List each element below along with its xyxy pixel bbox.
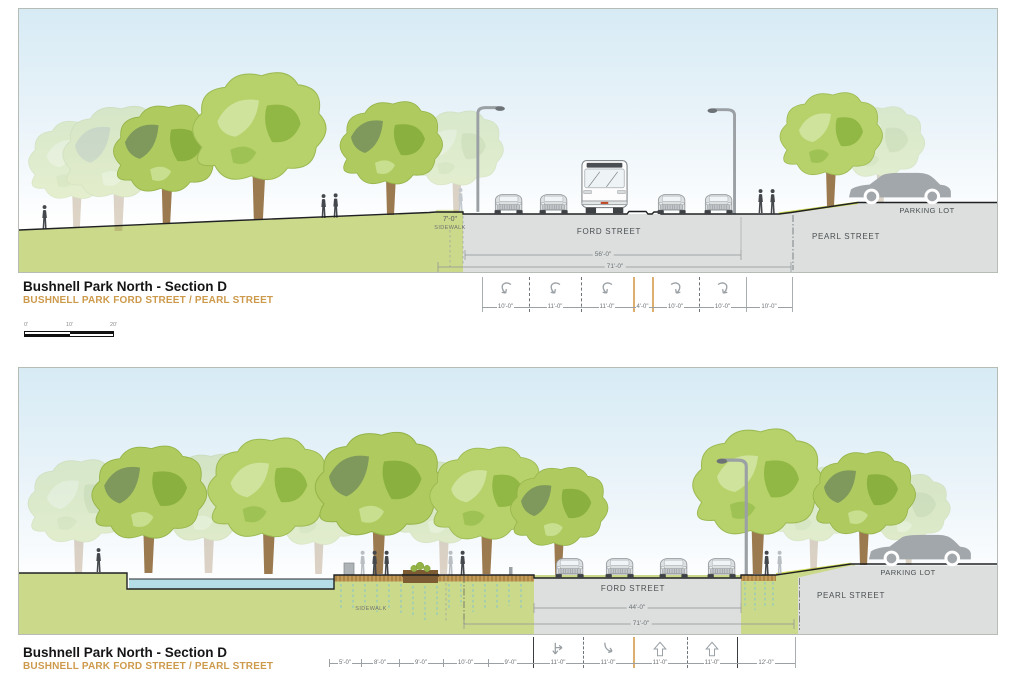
bottom-lane-dimension-row: 5'-0"8'-0"9'-0"10'-0"9'-0"11'-0"11'-0"11… (329, 637, 797, 672)
tree-icon (340, 102, 443, 215)
lane-arrow-up-icon (703, 640, 721, 658)
lane-width-label: 10'-0" (667, 304, 684, 310)
lane-cell: 11'-0" (687, 637, 737, 671)
car-icon (495, 195, 523, 215)
person-icon (758, 189, 763, 213)
lane-boundary (795, 637, 796, 668)
section-drawing-sheet: 7'-0" SIDEWALK FORD STREET PEARL STREET … (0, 0, 1024, 683)
lane-width-label: 4'-0" (636, 304, 650, 310)
parking-lot-label: PARKING LOT (880, 568, 935, 577)
ford-street-label: FORD STREET (577, 227, 641, 236)
parked-car-icon (849, 173, 951, 203)
pearl-street-label: PEARL STREET (817, 591, 885, 600)
bottom-section-panel: SIDEWALK FORD STREET PEARL STREET PARKIN… (18, 367, 998, 635)
soil-band (741, 575, 776, 581)
top-lane-dimension-row: 10'-0"11'-0"11'-0"4'-0"10'-0"10'-0"10'-0… (482, 277, 794, 316)
page-subtitle: BUSHNELL PARK FORD STREET / PEARL STREET (23, 661, 273, 672)
lane-arrow-up-icon (651, 640, 669, 658)
scale-tick-label: 0' (24, 322, 28, 328)
page-title: Bushnell Park North - Section D (23, 645, 273, 660)
lane-arrow-curve-right-icon (599, 640, 617, 658)
person-icon (764, 551, 769, 575)
lane-cell: 10'-0" (746, 277, 792, 315)
lane-cell: 10'-0" (482, 277, 529, 315)
car-icon (658, 195, 686, 215)
ford-street-label: FORD STREET (601, 584, 665, 593)
person-icon (770, 189, 775, 213)
lane-arrow-curl-right-icon (667, 280, 685, 298)
lane-width-label: 11'-0" (600, 660, 617, 666)
lane-cell: 11'-0" (529, 277, 581, 315)
tree-icon (511, 467, 608, 575)
tree-icon (693, 429, 824, 574)
water-channel (129, 579, 334, 589)
lane-width-label: 11'-0" (704, 660, 721, 666)
lane-width-label: 9'-0" (414, 660, 428, 666)
person-icon (96, 548, 101, 572)
car-icon (705, 195, 733, 215)
person-icon (448, 551, 453, 575)
car-icon (540, 195, 568, 215)
lane-arrow-curl-left-icon (497, 280, 515, 298)
lane-width-label: 11'-0" (599, 304, 616, 310)
lane-width-label: 12'-0" (757, 660, 774, 666)
lane-cell: 5'-0" (329, 637, 361, 671)
top-section-panel: 7'-0" SIDEWALK FORD STREET PEARL STREET … (18, 8, 998, 273)
scale-bar: 0' 10' 20' (24, 322, 144, 340)
top-title-block: Bushnell Park North - Section D BUSHNELL… (23, 279, 273, 306)
planter (402, 570, 439, 583)
lane-width-label: 10'-0" (714, 304, 731, 310)
lane-width-label: 11'-0" (652, 660, 669, 666)
lane-cell: 10'-0" (699, 277, 746, 315)
tree-icon (92, 446, 207, 573)
bollard-icon (509, 567, 513, 575)
lane-width-label: 9'-0" (504, 660, 518, 666)
bus-icon (582, 161, 627, 214)
lane-width-label: 5'-0" (338, 660, 352, 666)
tree-icon (315, 432, 443, 574)
bottom-title-block: Bushnell Park North - Section D BUSHNELL… (23, 645, 273, 672)
lane-cell: 9'-0" (488, 637, 533, 671)
lane-cell: 12'-0" (737, 637, 795, 671)
scale-tick-label: 10' (66, 322, 73, 328)
pearl-street-label: PEARL STREET (812, 232, 880, 241)
lane-cell: 8'-0" (361, 637, 399, 671)
lane-width-label: 11'-0" (550, 660, 567, 666)
lane-width-label: 11'-0" (547, 304, 564, 310)
lane-width-label: 10'-0" (497, 304, 514, 310)
lane-cell: 10'-0" (443, 637, 488, 671)
lane-cell: 10'-0" (652, 277, 699, 315)
tree-icon (193, 73, 326, 220)
trash-bin-icon (344, 563, 354, 575)
person-icon (321, 194, 326, 218)
parking-lot-label: PARKING LOT (899, 206, 954, 215)
lane-cell: 4'-0" (633, 277, 652, 315)
roadway-width-dim: 44'-0" (627, 604, 648, 611)
park-ground (19, 210, 463, 272)
trees (92, 429, 916, 575)
overall-width-dim: 71'-0" (605, 263, 626, 270)
lane-cell: 9'-0" (399, 637, 443, 671)
roadway-width-dim: 56'-0" (593, 251, 614, 258)
lane-boundary (792, 277, 793, 312)
overall-width-dim: 71'-0" (631, 620, 652, 627)
lane-width-label: 10'-0" (760, 304, 777, 310)
person-icon (384, 551, 389, 575)
sidewalk-width-label: 7'-0" (443, 216, 457, 223)
lane-cell: 11'-0" (581, 277, 633, 315)
lane-arrow-curl-left-icon (598, 280, 616, 298)
lane-cell: 11'-0" (533, 637, 583, 671)
lane-arrow-curl-right-icon (714, 280, 732, 298)
sidewalk-label: SIDEWALK (434, 225, 465, 231)
lane-arrow-branch-right-icon (549, 640, 567, 658)
person-icon (42, 205, 47, 229)
person-icon (333, 193, 338, 217)
scale-bar-graphic (24, 331, 114, 337)
lane-width-label: 10'-0" (457, 660, 474, 666)
person-icon (460, 551, 465, 575)
person-icon (777, 551, 782, 575)
lane-cell: 11'-0" (633, 637, 687, 671)
lane-cell: 11'-0" (583, 637, 633, 671)
person-icon (360, 551, 365, 575)
lane-arrow-curl-left-icon (546, 280, 564, 298)
parked-car-icon (869, 535, 971, 565)
lane-width-label: 8'-0" (373, 660, 387, 666)
tree-icon (208, 438, 331, 574)
sidewalk-label: SIDEWALK (355, 606, 386, 612)
page-subtitle: BUSHNELL PARK FORD STREET / PEARL STREET (23, 295, 273, 306)
page-title: Bushnell Park North - Section D (23, 279, 273, 294)
scale-tick-label: 20' (110, 322, 117, 328)
